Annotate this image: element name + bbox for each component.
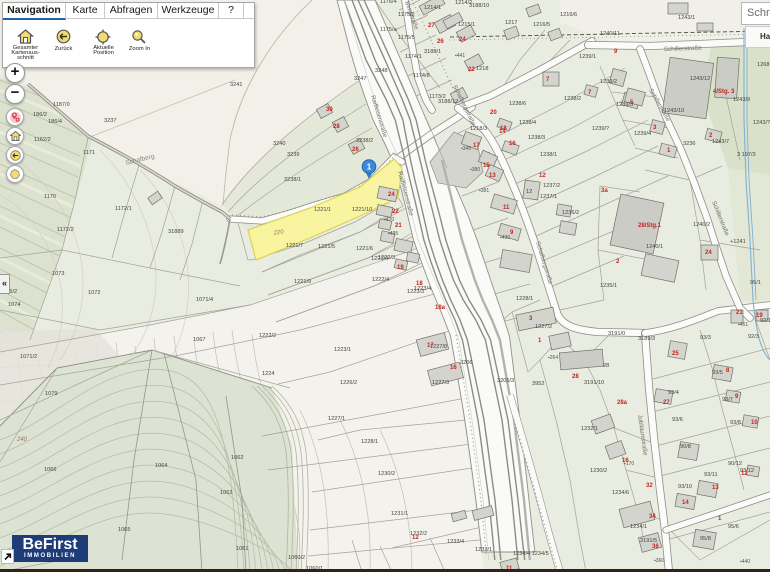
svg-text:28/Stg.1: 28/Stg.1 [638,223,662,229]
svg-text:16: 16 [450,365,457,371]
svg-text:28a: 28a [617,400,628,406]
svg-text:95/6: 95/6 [728,524,739,530]
svg-text:3238/1: 3238/1 [284,177,301,183]
svg-text:1236/2: 1236/2 [562,210,579,216]
svg-text:1162/2: 1162/2 [34,137,51,143]
svg-text:27: 27 [663,400,670,406]
svg-text:1172/2: 1172/2 [57,227,74,233]
svg-text:28: 28 [333,124,340,130]
svg-text:3188/1: 3188/1 [424,49,441,55]
svg-text:20: 20 [490,110,497,116]
svg-text:1230/2: 1230/2 [378,471,395,477]
svg-text:1060/2: 1060/2 [288,555,305,561]
svg-text:186/2: 186/2 [33,112,47,118]
svg-text:3206: 3206 [460,360,472,366]
svg-text:1226/2: 1226/2 [340,380,357,386]
svg-text:1227/1: 1227/1 [328,416,345,422]
svg-text:1067: 1067 [193,337,205,343]
svg-text:1221/10: 1221/10 [352,207,372,213]
svg-text:93/11: 93/11 [704,472,718,478]
svg-text:12: 12 [539,173,546,179]
svg-text:1238/2: 1238/2 [564,96,581,102]
svg-text:18a: 18a [435,305,446,311]
svg-text:1233/1: 1233/1 [475,547,492,553]
svg-text:3237: 3237 [104,118,116,124]
svg-text:1221/7: 1221/7 [286,243,303,249]
svg-text:▪440: ▪440 [740,559,750,565]
svg-text:24: 24 [388,192,395,198]
svg-text:1222/2: 1222/2 [259,333,276,339]
svg-text:1214/1: 1214/1 [424,5,441,11]
svg-text:32: 32 [646,483,653,489]
svg-text:31889: 31889 [168,229,184,235]
svg-text:26: 26 [437,39,444,45]
svg-text:1216/6: 1216/6 [560,12,577,18]
svg-text:1176/4: 1176/4 [380,0,397,5]
svg-text:30: 30 [326,107,333,113]
svg-text:28: 28 [572,374,579,380]
svg-text:93/8: 93/8 [730,420,741,426]
svg-text:16: 16 [622,458,629,464]
svg-text:1221/6: 1221/6 [356,246,373,252]
svg-text:1240/1: 1240/1 [646,244,663,250]
svg-text:3239: 3239 [287,152,299,158]
svg-text:93/5: 93/5 [712,370,723,376]
svg-text:1243/?: 1243/? [753,120,770,126]
svg-text:93/3: 93/3 [700,335,711,341]
svg-text:1235/1: 1235/1 [600,283,617,289]
svg-text:3248: 3248 [375,68,387,74]
svg-text:1064: 1064 [155,463,167,469]
svg-text:240: 240 [16,437,28,443]
svg-text:95/8: 95/8 [700,536,711,542]
svg-text:3188/12: 3188/12 [438,99,458,105]
svg-text:1268: 1268 [757,62,769,68]
svg-text:1222/4: 1222/4 [372,277,389,283]
svg-text:18: 18 [416,281,423,287]
svg-text:3191/10: 3191/10 [584,380,604,386]
svg-text:1238/4: 1238/4 [519,120,536,126]
svg-text:3241: 3241 [230,82,242,88]
svg-text:24: 24 [705,250,712,256]
svg-text:186/4: 186/4 [48,119,62,125]
svg-text:3a: 3a [601,188,608,194]
svg-text:▪420: ▪420 [384,217,394,223]
svg-text:1071/4: 1071/4 [196,297,213,303]
svg-text:17: 17 [427,343,434,349]
svg-text:1221/5: 1221/5 [318,244,335,250]
svg-text:93/4: 93/4 [668,390,679,396]
svg-text:1237/1: 1237/1 [540,194,557,200]
svg-text:27: 27 [428,23,435,29]
svg-text:3189/3: 3189/3 [638,336,655,342]
svg-text:1228/1: 1228/1 [516,296,533,302]
svg-text:1239/4: 1239/4 [634,131,651,137]
svg-text:1066: 1066 [44,467,56,473]
svg-text:19: 19 [397,265,404,271]
svg-text:▪425: ▪425 [388,231,398,237]
svg-text:90/12: 90/12 [728,461,742,467]
svg-text:1234/4 1234/5: 1234/4 1234/5 [513,551,549,557]
svg-text:1061: 1061 [236,546,248,552]
svg-text:1234/6: 1234/6 [612,490,629,496]
svg-text:1062: 1062 [231,455,243,461]
svg-text:1172/1: 1172/1 [115,206,132,212]
svg-text:1171: 1171 [83,150,95,156]
svg-text:1222/3: 1222/3 [378,255,395,261]
svg-text:▪360: ▪360 [654,558,664,564]
svg-text:1243/1: 1243/1 [678,15,695,21]
svg-text:1233/4: 1233/4 [447,539,464,545]
svg-text:18: 18 [500,126,507,132]
svg-text:13: 13 [489,173,496,179]
svg-text:1238/3: 1238/3 [528,135,545,141]
svg-text:3 197/3: 3 197/3 [737,152,756,158]
svg-text:1221/1: 1221/1 [314,207,331,213]
svg-text:1215/1: 1215/1 [458,22,475,28]
svg-text:11: 11 [503,205,510,211]
svg-text:1187/0: 1187/0 [53,102,70,108]
svg-text:1063: 1063 [220,490,232,496]
svg-text:36: 36 [652,544,659,550]
svg-text:21: 21 [736,310,743,316]
svg-text:17: 17 [473,143,480,149]
svg-text:28: 28 [603,363,609,369]
svg-text:3240: 3240 [273,141,285,147]
svg-text:1175/2: 1175/2 [398,12,415,18]
svg-text:1232/1: 1232/1 [581,426,598,432]
svg-text:93/10: 93/10 [678,484,692,490]
svg-text:1074: 1074 [8,302,20,308]
svg-text:▪430: ▪430 [500,235,510,241]
svg-text:1243/12: 1243/12 [690,76,710,82]
svg-text:3247: 3247 [354,76,366,82]
svg-text:3952: 3952 [532,381,544,387]
svg-text:▪345: ▪345 [461,146,471,152]
svg-text:25: 25 [672,351,679,357]
svg-text:1218/3: 1218/3 [470,126,487,132]
svg-text:1224: 1224 [262,371,274,377]
svg-text:1230/2: 1230/2 [590,468,607,474]
svg-text:1065: 1065 [118,527,130,533]
svg-text:▪381: ▪381 [479,188,489,194]
svg-text:24: 24 [459,37,466,43]
svg-text:21: 21 [395,223,402,229]
svg-text:34: 34 [649,514,656,520]
svg-text:1174/1: 1174/1 [405,54,422,60]
svg-text:1239/1: 1239/1 [579,54,596,60]
svg-text:26: 26 [352,147,359,153]
svg-text:3205/3: 3205/3 [497,378,514,384]
svg-text:Schillerstraße: Schillerstraße [664,45,703,53]
svg-text:3191/0: 3191/0 [608,331,625,337]
svg-text:1228/1: 1228/1 [361,439,378,445]
svg-text:1: 1 [367,163,372,172]
svg-text:90/8: 90/8 [680,444,691,450]
svg-text:1238/6: 1238/6 [509,101,526,107]
svg-text:▪380: ▪380 [470,167,480,173]
svg-text:22: 22 [392,209,399,215]
svg-text:1217: 1217 [505,20,517,26]
svg-text:92/3: 92/3 [748,334,759,340]
svg-text:1234/1: 1234/1 [630,524,647,530]
svg-text:12: 12 [526,189,532,195]
svg-text:1238/1: 1238/1 [540,152,557,158]
svg-text:▪264: ▪264 [548,355,558,361]
svg-text:19: 19 [756,313,763,319]
svg-text:95/1: 95/1 [750,280,761,286]
svg-text:1240/11: 1240/11 [600,31,620,37]
svg-text:1073: 1073 [52,271,64,277]
svg-text:22: 22 [468,67,475,73]
svg-text:1223/1: 1223/1 [334,347,351,353]
svg-text:1174/8: 1174/8 [413,73,430,79]
svg-text:3238/2: 3238/2 [356,138,373,144]
svg-text:1175/5: 1175/5 [398,35,415,41]
svg-text:3236: 3236 [683,141,695,147]
svg-text:1237/2: 1237/2 [543,183,560,189]
svg-text:1072: 1072 [88,290,100,296]
svg-text:1239/?: 1239/? [592,126,609,132]
svg-text:▪441: ▪441 [455,53,465,59]
svg-text:1239/2: 1239/2 [600,79,617,85]
svg-text:4/Stg. 3: 4/Stg. 3 [713,89,735,95]
svg-text:1079: 1079 [45,391,57,397]
svg-text:12: 12 [412,535,419,541]
svg-text:1227/3: 1227/3 [432,380,449,386]
svg-text:93/7: 93/7 [722,397,733,403]
svg-text:13: 13 [712,485,719,491]
svg-text:1240/2: 1240/2 [693,222,710,228]
svg-text:1221/9: 1221/9 [294,279,311,285]
svg-text:+1241: +1241 [730,239,746,245]
svg-text:1170: 1170 [44,194,56,200]
svg-text:1243/9: 1243/9 [733,97,750,103]
svg-text:1243/10: 1243/10 [664,108,684,114]
svg-text:12: 12 [741,471,748,477]
svg-text:1175/a: 1175/a [380,27,398,33]
svg-text:▪461: ▪461 [738,322,748,328]
svg-text:3188/10: 3188/10 [469,3,489,9]
svg-text:16: 16 [509,141,516,147]
svg-text:14: 14 [682,500,689,506]
svg-text:1227/2: 1227/2 [535,324,552,330]
svg-text:15: 15 [483,163,490,169]
svg-text:1243/7: 1243/7 [712,139,729,145]
svg-text:1231/1: 1231/1 [391,511,408,517]
svg-text:10: 10 [751,420,758,426]
svg-text:1071/2: 1071/2 [20,354,37,360]
svg-text:1218: 1218 [476,66,488,72]
svg-text:1216/5: 1216/5 [533,22,550,28]
svg-text:93/6: 93/6 [672,417,683,423]
